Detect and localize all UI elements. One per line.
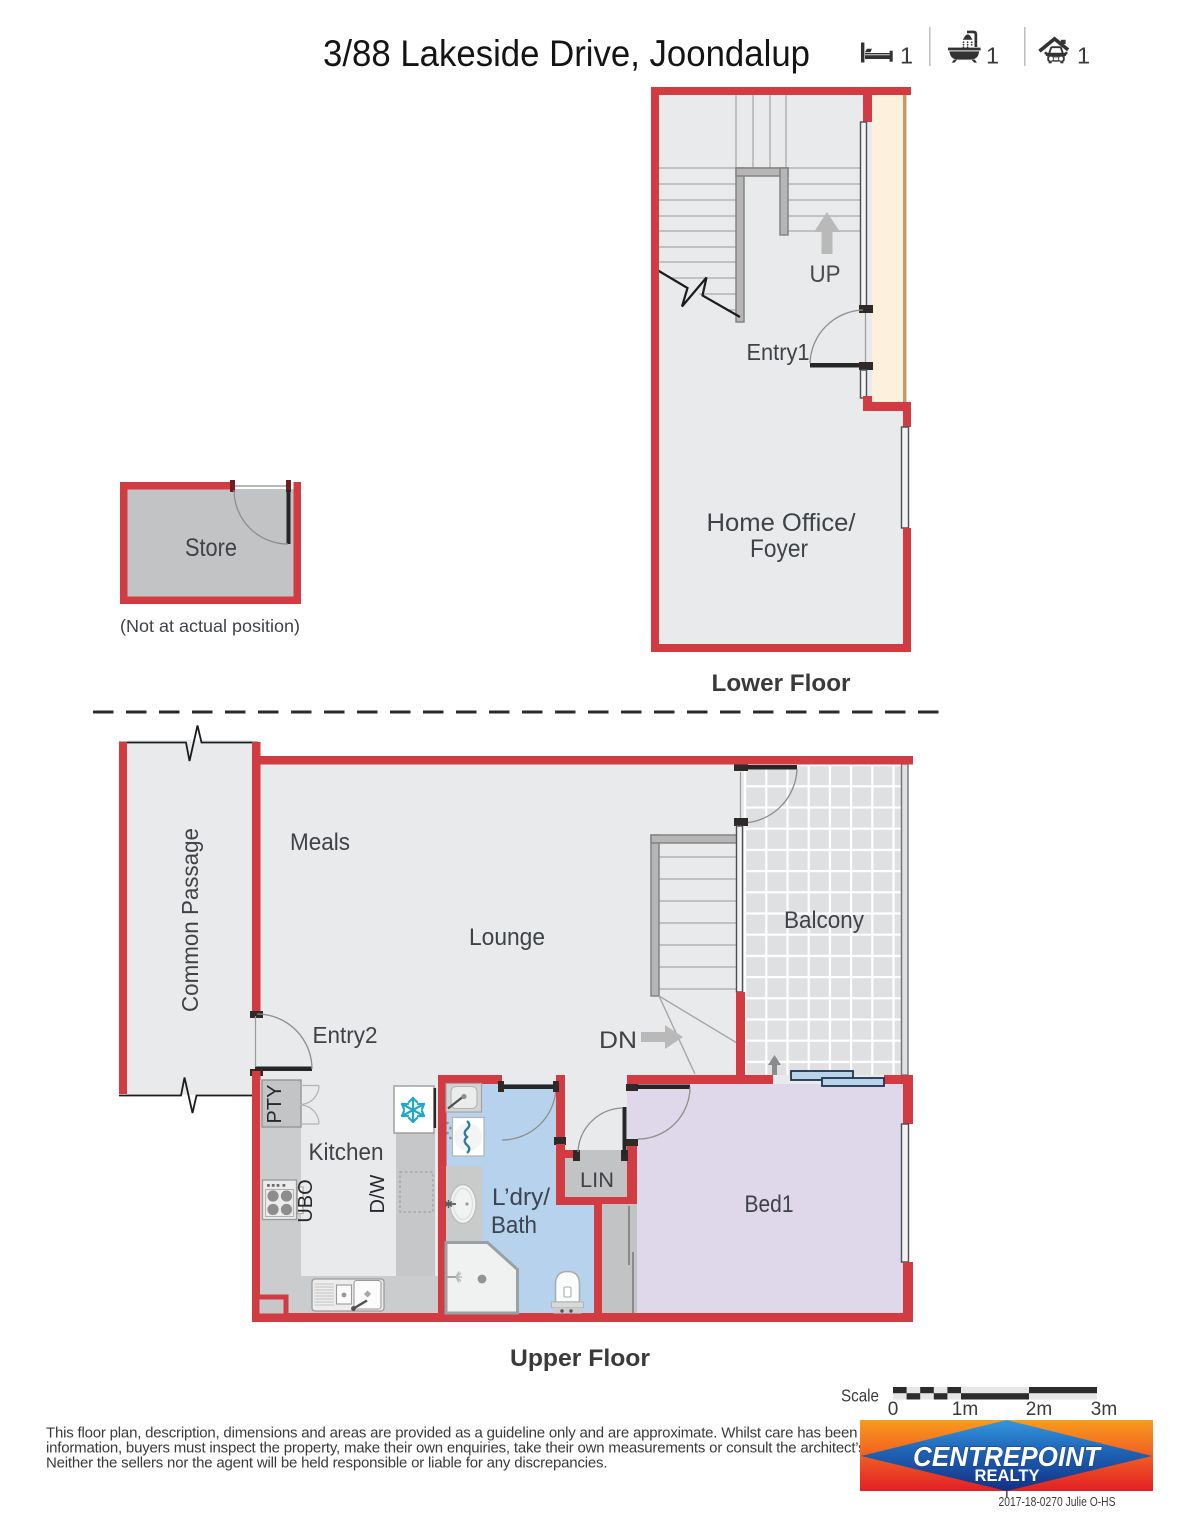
svg-text:3/88 Lakeside Drive, Joondalup: 3/88 Lakeside Drive, Joondalup: [323, 32, 810, 74]
svg-text:Foyer: Foyer: [750, 535, 808, 563]
svg-text:Upper Floor: Upper Floor: [510, 1345, 650, 1372]
svg-text:2m: 2m: [1026, 1399, 1052, 1420]
svg-text:1: 1: [986, 43, 999, 69]
svg-text:Common Passage: Common Passage: [177, 828, 203, 1012]
svg-text:REALTY: REALTY: [975, 1466, 1041, 1485]
svg-text:1m: 1m: [952, 1399, 978, 1420]
svg-text:Entry2: Entry2: [313, 1022, 378, 1048]
svg-text:Balcony: Balcony: [784, 907, 864, 934]
svg-text:2017-18-0270 Julie O-HS: 2017-18-0270 Julie O-HS: [999, 1494, 1116, 1509]
svg-text:Neither the sellers nor the ag: Neither the sellers nor the agent will b…: [46, 1455, 607, 1472]
svg-text:UP: UP: [810, 261, 841, 288]
svg-text:Bed1: Bed1: [745, 1191, 794, 1218]
svg-text:Meals: Meals: [290, 829, 350, 856]
svg-text:Scale: Scale: [841, 1386, 879, 1406]
svg-text:Bath: Bath: [491, 1212, 537, 1239]
svg-text:3m: 3m: [1091, 1399, 1117, 1420]
svg-text:Entry1: Entry1: [747, 339, 810, 365]
svg-text:UBO: UBO: [295, 1179, 317, 1222]
svg-text:L’dry/: L’dry/: [492, 1184, 550, 1211]
svg-text:Lower Floor: Lower Floor: [712, 670, 851, 697]
svg-text:DN: DN: [599, 1027, 637, 1054]
svg-text:1: 1: [900, 43, 913, 69]
svg-text:Home Office/: Home Office/: [707, 509, 856, 537]
svg-text:Store: Store: [185, 534, 237, 562]
svg-text:PTY: PTY: [264, 1085, 286, 1124]
svg-text:D/W: D/W: [367, 1174, 389, 1213]
svg-text:1: 1: [1077, 43, 1090, 69]
svg-text:Lounge: Lounge: [469, 924, 545, 951]
svg-text:Kitchen: Kitchen: [309, 1139, 384, 1166]
svg-text:LIN: LIN: [580, 1169, 614, 1192]
svg-text:(Not at actual position): (Not at actual position): [120, 616, 300, 636]
svg-text:0: 0: [888, 1399, 899, 1420]
